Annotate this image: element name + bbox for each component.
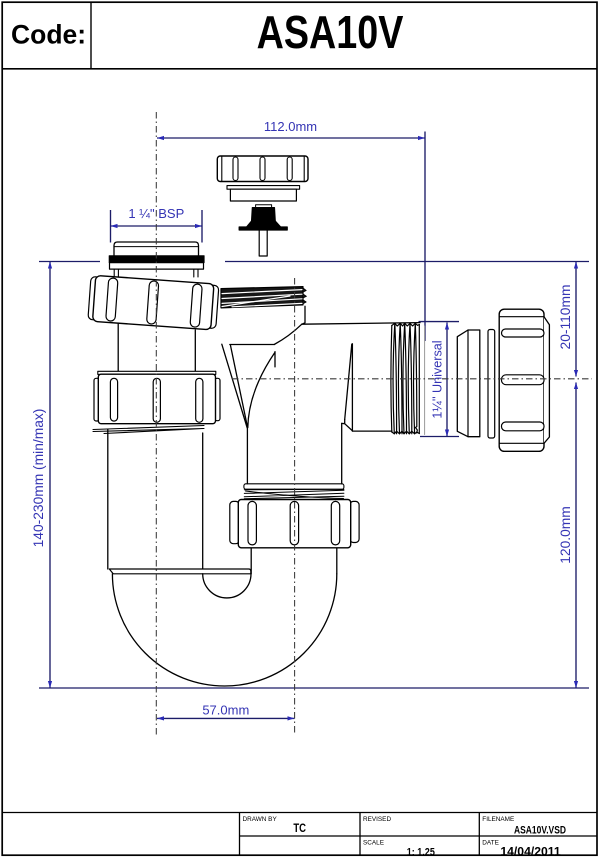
svg-text:DATE: DATE (482, 839, 499, 846)
svg-text:57.0mm: 57.0mm (202, 703, 249, 718)
svg-text:1: 1.25: 1: 1.25 (407, 847, 435, 859)
svg-text:1 ¼" BSP: 1 ¼" BSP (128, 206, 184, 221)
svg-text:14/04/2011: 14/04/2011 (500, 844, 561, 858)
svg-text:112.0mm: 112.0mm (264, 119, 317, 134)
svg-text:20-110mm: 20-110mm (558, 285, 573, 350)
svg-text:1¼" Universal: 1¼" Universal (429, 340, 444, 418)
svg-text:120.0mm: 120.0mm (558, 506, 573, 564)
svg-text:TC: TC (293, 822, 306, 835)
svg-text:FILENAME: FILENAME (482, 816, 514, 823)
svg-text:Code:: Code: (11, 20, 86, 50)
svg-text:REVISED: REVISED (363, 816, 391, 823)
svg-text:ASA10V.VSD: ASA10V.VSD (514, 825, 566, 837)
svg-text:SCALE: SCALE (363, 839, 384, 846)
svg-text:140-230mm (min/max): 140-230mm (min/max) (31, 409, 46, 548)
svg-text:ASA10V: ASA10V (257, 6, 404, 57)
svg-text:DRAWN BY: DRAWN BY (243, 816, 278, 823)
